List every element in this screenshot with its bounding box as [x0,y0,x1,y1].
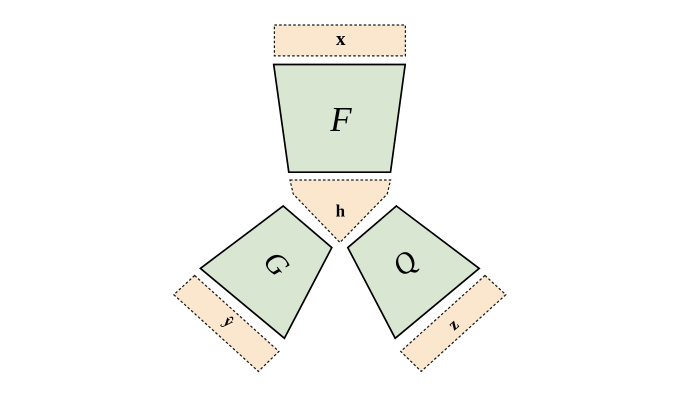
svg-text:x: x [336,29,346,50]
svg-text:F: F [329,100,352,139]
svg-text:h: h [336,202,346,221]
